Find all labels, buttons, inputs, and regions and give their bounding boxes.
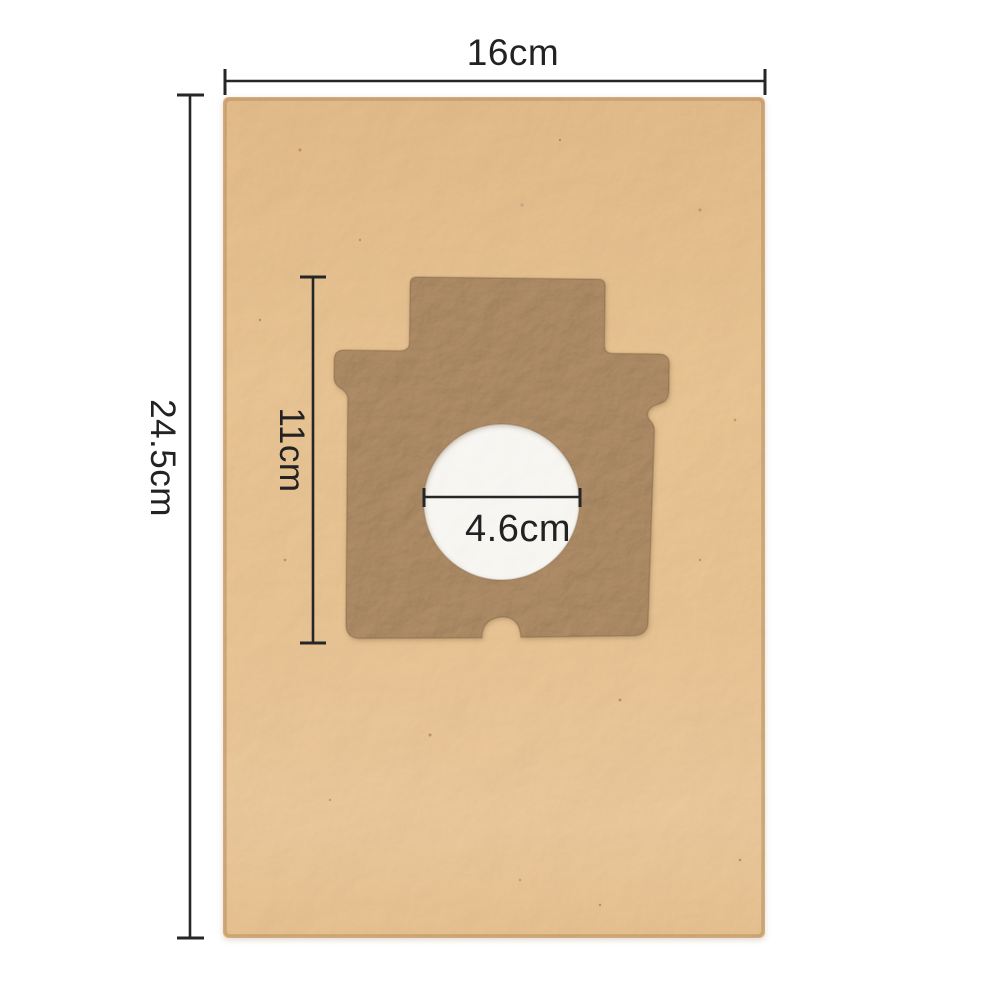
product-dimension-diagram: 16cm 24.5cm 11cm 4.6cm bbox=[0, 0, 1000, 1000]
bag-height-dimension-label: 24.5cm bbox=[144, 378, 180, 538]
collar-height-dimension-label: 11cm bbox=[273, 390, 309, 510]
hole-diameter-dimension-label: 4.6cm bbox=[438, 510, 598, 548]
bag-width-dimension-label: 16cm bbox=[433, 34, 593, 71]
